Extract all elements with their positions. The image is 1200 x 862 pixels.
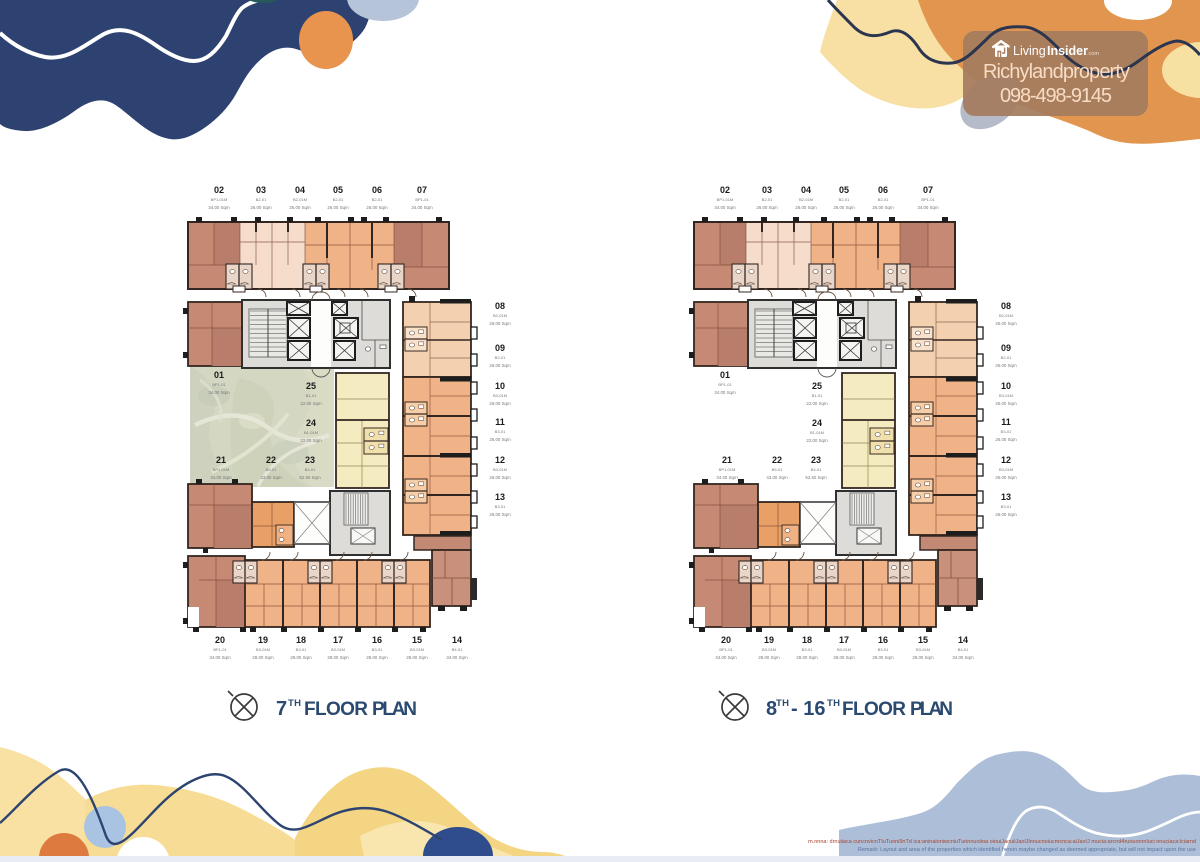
svg-text:26.00 Sqm: 26.00 Sqm <box>995 512 1017 517</box>
svg-text:21: 21 <box>216 455 226 465</box>
svg-text:B5-01: B5-01 <box>266 467 277 472</box>
svg-text:04: 04 <box>801 185 811 195</box>
svg-text:B5-01: B5-01 <box>772 467 783 472</box>
svg-text:28.00 Sqm: 28.00 Sqm <box>833 655 855 660</box>
svg-text:22.00 Sqm: 22.00 Sqm <box>300 438 322 443</box>
svg-text:13: 13 <box>495 492 505 502</box>
svg-text:12: 12 <box>495 455 505 465</box>
svg-text:02: 02 <box>214 185 224 195</box>
svg-text:B4-01: B4-01 <box>811 467 822 472</box>
svg-text:26.00 Sqm: 26.00 Sqm <box>366 205 388 210</box>
svg-text:34.00 Sqm: 34.00 Sqm <box>208 390 230 395</box>
svg-text:34.00 Sqm: 34.00 Sqm <box>716 475 738 480</box>
svg-text:23: 23 <box>811 455 821 465</box>
svg-text:01: 01 <box>214 370 224 380</box>
svg-text:34.00 Sqm: 34.00 Sqm <box>210 475 232 480</box>
svg-text:06: 06 <box>372 185 382 195</box>
svg-text:22: 22 <box>772 455 782 465</box>
svg-text:34.00 Sqm: 34.00 Sqm <box>715 655 737 660</box>
svg-text:Richylandproperty: Richylandproperty <box>983 61 1130 83</box>
svg-text:B3-01M: B3-01M <box>493 393 507 398</box>
svg-text:B2-01: B2-01 <box>839 197 850 202</box>
svg-text:BP1-01: BP1-01 <box>921 197 935 202</box>
svg-text:28.00 Sqm: 28.00 Sqm <box>252 655 274 660</box>
svg-text:B2-01: B2-01 <box>333 197 344 202</box>
svg-text:26.00 Sqm: 26.00 Sqm <box>995 475 1017 480</box>
svg-text:B1-01: B1-01 <box>812 393 823 398</box>
svg-text:17: 17 <box>839 635 849 645</box>
svg-text:B3-01M: B3-01M <box>837 647 851 652</box>
svg-text:B3-01: B3-01 <box>495 429 506 434</box>
svg-text:BP1-01: BP1-01 <box>415 197 429 202</box>
svg-text:17: 17 <box>333 635 343 645</box>
svg-text:26.00 Sqm: 26.00 Sqm <box>833 205 855 210</box>
svg-text:09: 09 <box>495 343 505 353</box>
svg-text:10: 10 <box>495 381 505 391</box>
svg-text:26.00 Sqm: 26.00 Sqm <box>995 401 1017 406</box>
svg-text:19: 19 <box>258 635 268 645</box>
svg-text:14: 14 <box>958 635 968 645</box>
svg-text:14: 14 <box>452 635 462 645</box>
svg-text:26.00 Sqm: 26.00 Sqm <box>872 205 894 210</box>
svg-text:BP1-01: BP1-01 <box>719 647 733 652</box>
svg-text:20: 20 <box>721 635 731 645</box>
svg-text:28.00 Sqm: 28.00 Sqm <box>290 655 312 660</box>
svg-text:28.00 Sqm: 28.00 Sqm <box>327 655 349 660</box>
svg-text:19: 19 <box>764 635 774 645</box>
svg-text:43.00 Sqm: 43.00 Sqm <box>766 475 788 480</box>
svg-text:11: 11 <box>1001 417 1011 427</box>
svg-text:08: 08 <box>1001 301 1011 311</box>
svg-text:BP1-01M: BP1-01M <box>719 467 736 472</box>
svg-text:08: 08 <box>495 301 505 311</box>
svg-text:23: 23 <box>305 455 315 465</box>
svg-text:FLOOR: FLOOR <box>842 699 906 720</box>
svg-text:Insider: Insider <box>1047 44 1088 58</box>
svg-text:TH: TH <box>776 698 789 709</box>
svg-text:20: 20 <box>215 635 225 645</box>
svg-text:B4-01: B4-01 <box>305 467 316 472</box>
svg-text:B3-01: B3-01 <box>878 647 889 652</box>
svg-text:BP1-01M: BP1-01M <box>717 197 734 202</box>
svg-text:B2-01: B2-01 <box>372 197 383 202</box>
svg-text:05: 05 <box>333 185 343 195</box>
svg-text:26.00 Sqm: 26.00 Sqm <box>795 205 817 210</box>
svg-text:34.00 Sqm: 34.00 Sqm <box>917 205 939 210</box>
svg-text:26.00 Sqm: 26.00 Sqm <box>489 321 511 326</box>
svg-text:34.00 Sqm: 34.00 Sqm <box>714 205 736 210</box>
svg-text:09: 09 <box>1001 343 1011 353</box>
svg-text:BP1-01: BP1-01 <box>718 382 732 387</box>
svg-text:22.00 Sqm: 22.00 Sqm <box>806 438 828 443</box>
svg-text:52.50 Sqm: 52.50 Sqm <box>299 475 321 480</box>
svg-text:BP1-01: BP1-01 <box>212 382 226 387</box>
svg-text:TH: TH <box>827 698 840 709</box>
svg-text:03: 03 <box>256 185 266 195</box>
svg-text:24: 24 <box>812 418 822 428</box>
svg-text:B2-01: B2-01 <box>1001 355 1012 360</box>
svg-text:28.00 Sqm: 28.00 Sqm <box>758 655 780 660</box>
svg-text:B3-01M: B3-01M <box>493 467 507 472</box>
svg-text:B1-01M: B1-01M <box>304 430 318 435</box>
svg-text:B4-01: B4-01 <box>452 647 463 652</box>
svg-text:B2-01: B2-01 <box>762 197 773 202</box>
svg-text:B3-01: B3-01 <box>296 647 307 652</box>
svg-text:B3-01: B3-01 <box>1001 504 1012 509</box>
svg-text:B3-01: B3-01 <box>372 647 383 652</box>
svg-text:098-498-9145: 098-498-9145 <box>1000 85 1112 107</box>
svg-text:01: 01 <box>720 370 730 380</box>
svg-text:22.00 Sqm: 22.00 Sqm <box>806 401 828 406</box>
svg-text:B1-01: B1-01 <box>306 393 317 398</box>
svg-text:15: 15 <box>412 635 422 645</box>
svg-text:26.00 Sqm: 26.00 Sqm <box>327 205 349 210</box>
svg-text:BP1-01: BP1-01 <box>213 647 227 652</box>
svg-text:34.00 Sqm: 34.00 Sqm <box>208 205 230 210</box>
svg-text:B4-01: B4-01 <box>958 647 969 652</box>
svg-text:28.00 Sqm: 28.00 Sqm <box>366 655 388 660</box>
svg-text:PLAN: PLAN <box>372 699 417 720</box>
svg-text:43.00 Sqm: 43.00 Sqm <box>260 475 282 480</box>
svg-text:22.00 Sqm: 22.00 Sqm <box>300 401 322 406</box>
svg-text:- 16: - 16 <box>791 698 825 720</box>
svg-text:10: 10 <box>1001 381 1011 391</box>
svg-text:26.00 Sqm: 26.00 Sqm <box>489 401 511 406</box>
svg-text:52.50 Sqm: 52.50 Sqm <box>805 475 827 480</box>
svg-text:28.00 Sqm: 28.00 Sqm <box>796 655 818 660</box>
svg-text:B3-01M: B3-01M <box>999 393 1013 398</box>
svg-text:02: 02 <box>720 185 730 195</box>
svg-text:34.00 Sqm: 34.00 Sqm <box>446 655 468 660</box>
svg-text:26.00 Sqm: 26.00 Sqm <box>489 512 511 517</box>
svg-text:26.00 Sqm: 26.00 Sqm <box>489 437 511 442</box>
svg-text:34.00 Sqm: 34.00 Sqm <box>952 655 974 660</box>
svg-text:B2-01M: B2-01M <box>293 197 307 202</box>
svg-text:34.00 Sqm: 34.00 Sqm <box>411 205 433 210</box>
svg-text:7: 7 <box>276 698 287 720</box>
svg-text:B2-01M: B2-01M <box>999 313 1013 318</box>
svg-text:BP1-01M: BP1-01M <box>211 197 228 202</box>
svg-text:25: 25 <box>812 381 822 391</box>
svg-text:B3-01M: B3-01M <box>256 647 270 652</box>
svg-text:B3-01M: B3-01M <box>410 647 424 652</box>
svg-text:22: 22 <box>266 455 276 465</box>
svg-text:34.00 Sqm: 34.00 Sqm <box>714 390 736 395</box>
svg-text:B2-01: B2-01 <box>495 355 506 360</box>
svg-text:Remark: Layout and area of the: Remark: Layout and area of the propertie… <box>858 847 1196 853</box>
svg-text:B3-01: B3-01 <box>1001 429 1012 434</box>
svg-text:TH: TH <box>288 698 301 709</box>
svg-text:07: 07 <box>923 185 933 195</box>
svg-text:B2-01M: B2-01M <box>799 197 813 202</box>
svg-text:26.00 Sqm: 26.00 Sqm <box>995 437 1017 442</box>
svg-text:B3-01: B3-01 <box>802 647 813 652</box>
svg-text:28.00 Sqm: 28.00 Sqm <box>406 655 428 660</box>
svg-text:28.00 Sqm: 28.00 Sqm <box>872 655 894 660</box>
svg-text:03: 03 <box>762 185 772 195</box>
svg-text:26.00 Sqm: 26.00 Sqm <box>756 205 778 210</box>
svg-text:25: 25 <box>306 381 316 391</box>
svg-text:BP1-01M: BP1-01M <box>213 467 230 472</box>
svg-text:B3-01M: B3-01M <box>331 647 345 652</box>
svg-text:PLAN: PLAN <box>910 699 953 720</box>
svg-text:B3-01: B3-01 <box>495 504 506 509</box>
svg-text:26.00 Sqm: 26.00 Sqm <box>489 363 511 368</box>
svg-text:07: 07 <box>417 185 427 195</box>
svg-text:11: 11 <box>495 417 505 427</box>
svg-text:.com: .com <box>1087 51 1099 57</box>
svg-text:B1-01M: B1-01M <box>810 430 824 435</box>
svg-text:B3-01M: B3-01M <box>916 647 930 652</box>
svg-text:16: 16 <box>878 635 888 645</box>
svg-text:26.00 Sqm: 26.00 Sqm <box>489 475 511 480</box>
svg-text:B2-01: B2-01 <box>878 197 889 202</box>
svg-text:B3-01M: B3-01M <box>999 467 1013 472</box>
svg-text:21: 21 <box>722 455 732 465</box>
svg-text:B2-01: B2-01 <box>256 197 267 202</box>
svg-text:B2-01M: B2-01M <box>493 313 507 318</box>
svg-text:15: 15 <box>918 635 928 645</box>
svg-text:26.00 Sqm: 26.00 Sqm <box>250 205 272 210</box>
svg-text:16: 16 <box>372 635 382 645</box>
svg-text:26.00 Sqm: 26.00 Sqm <box>995 321 1017 326</box>
svg-text:12: 12 <box>1001 455 1011 465</box>
svg-text:FLOOR: FLOOR <box>304 699 368 720</box>
svg-text:18: 18 <box>802 635 812 645</box>
svg-text:m.nnna: drnuiiaca cuncnvicnTIu: m.nnna: drnuiiaca cuncnvicnTIuTuoni9nTd … <box>808 839 1196 845</box>
svg-text:05: 05 <box>839 185 849 195</box>
svg-text:13: 13 <box>1001 492 1011 502</box>
svg-text:18: 18 <box>296 635 306 645</box>
svg-text:B3-01M: B3-01M <box>762 647 776 652</box>
svg-text:28.00 Sqm: 28.00 Sqm <box>912 655 934 660</box>
svg-text:34.00 Sqm: 34.00 Sqm <box>209 655 231 660</box>
svg-text:Living: Living <box>1013 44 1046 58</box>
svg-text:24: 24 <box>306 418 316 428</box>
svg-text:26.00 Sqm: 26.00 Sqm <box>289 205 311 210</box>
svg-text:26.00 Sqm: 26.00 Sqm <box>995 363 1017 368</box>
svg-text:04: 04 <box>295 185 305 195</box>
svg-text:06: 06 <box>878 185 888 195</box>
